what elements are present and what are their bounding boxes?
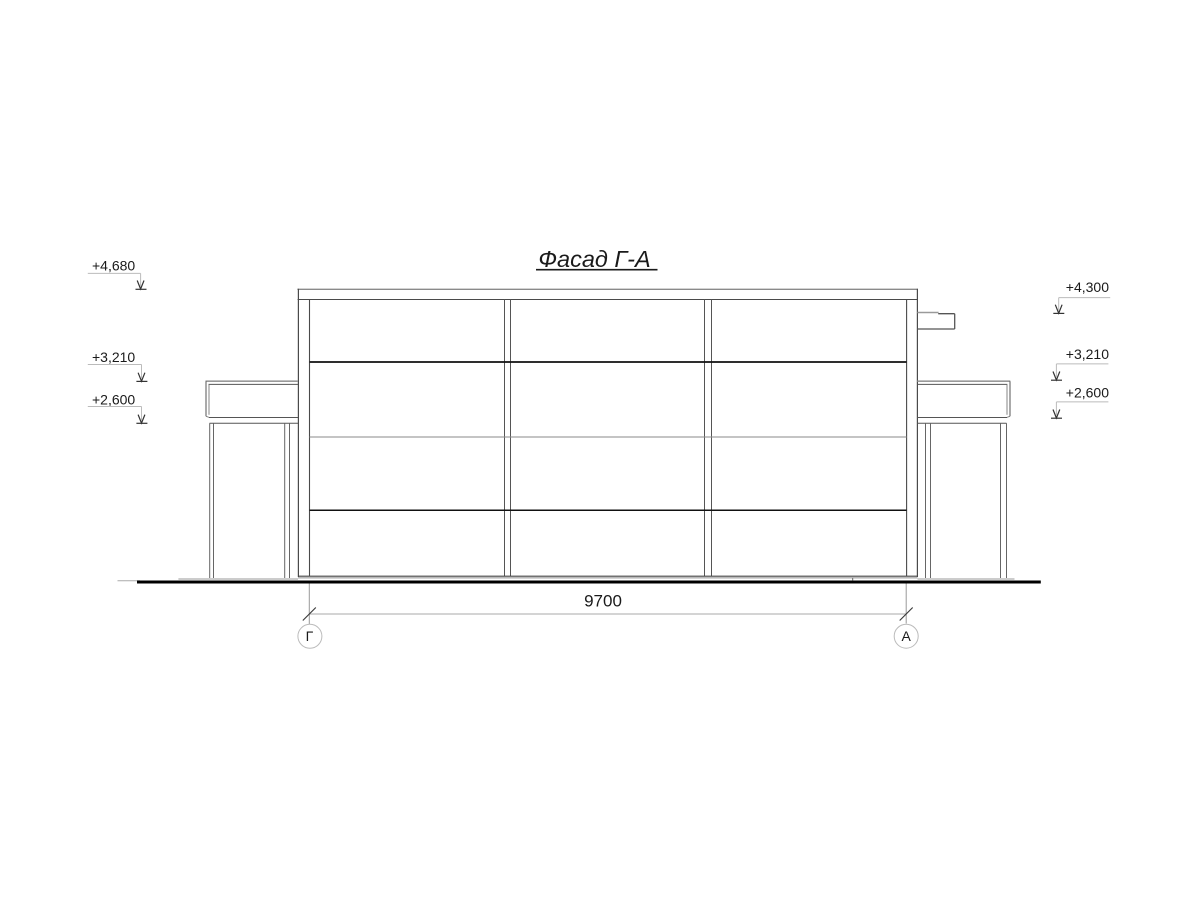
- svg-text:+2,600: +2,600: [92, 392, 135, 408]
- svg-text:Г: Г: [306, 628, 314, 644]
- svg-text:Фасад Г-А: Фасад Г-А: [538, 246, 650, 272]
- svg-text:+4,300: +4,300: [1066, 279, 1109, 295]
- svg-text:А: А: [902, 628, 912, 644]
- svg-text:+2,600: +2,600: [1066, 385, 1109, 401]
- svg-text:+3,210: +3,210: [92, 349, 135, 365]
- svg-text:9700: 9700: [584, 592, 622, 611]
- svg-text:+3,210: +3,210: [1066, 346, 1109, 362]
- svg-text:+4,680: +4,680: [92, 258, 135, 274]
